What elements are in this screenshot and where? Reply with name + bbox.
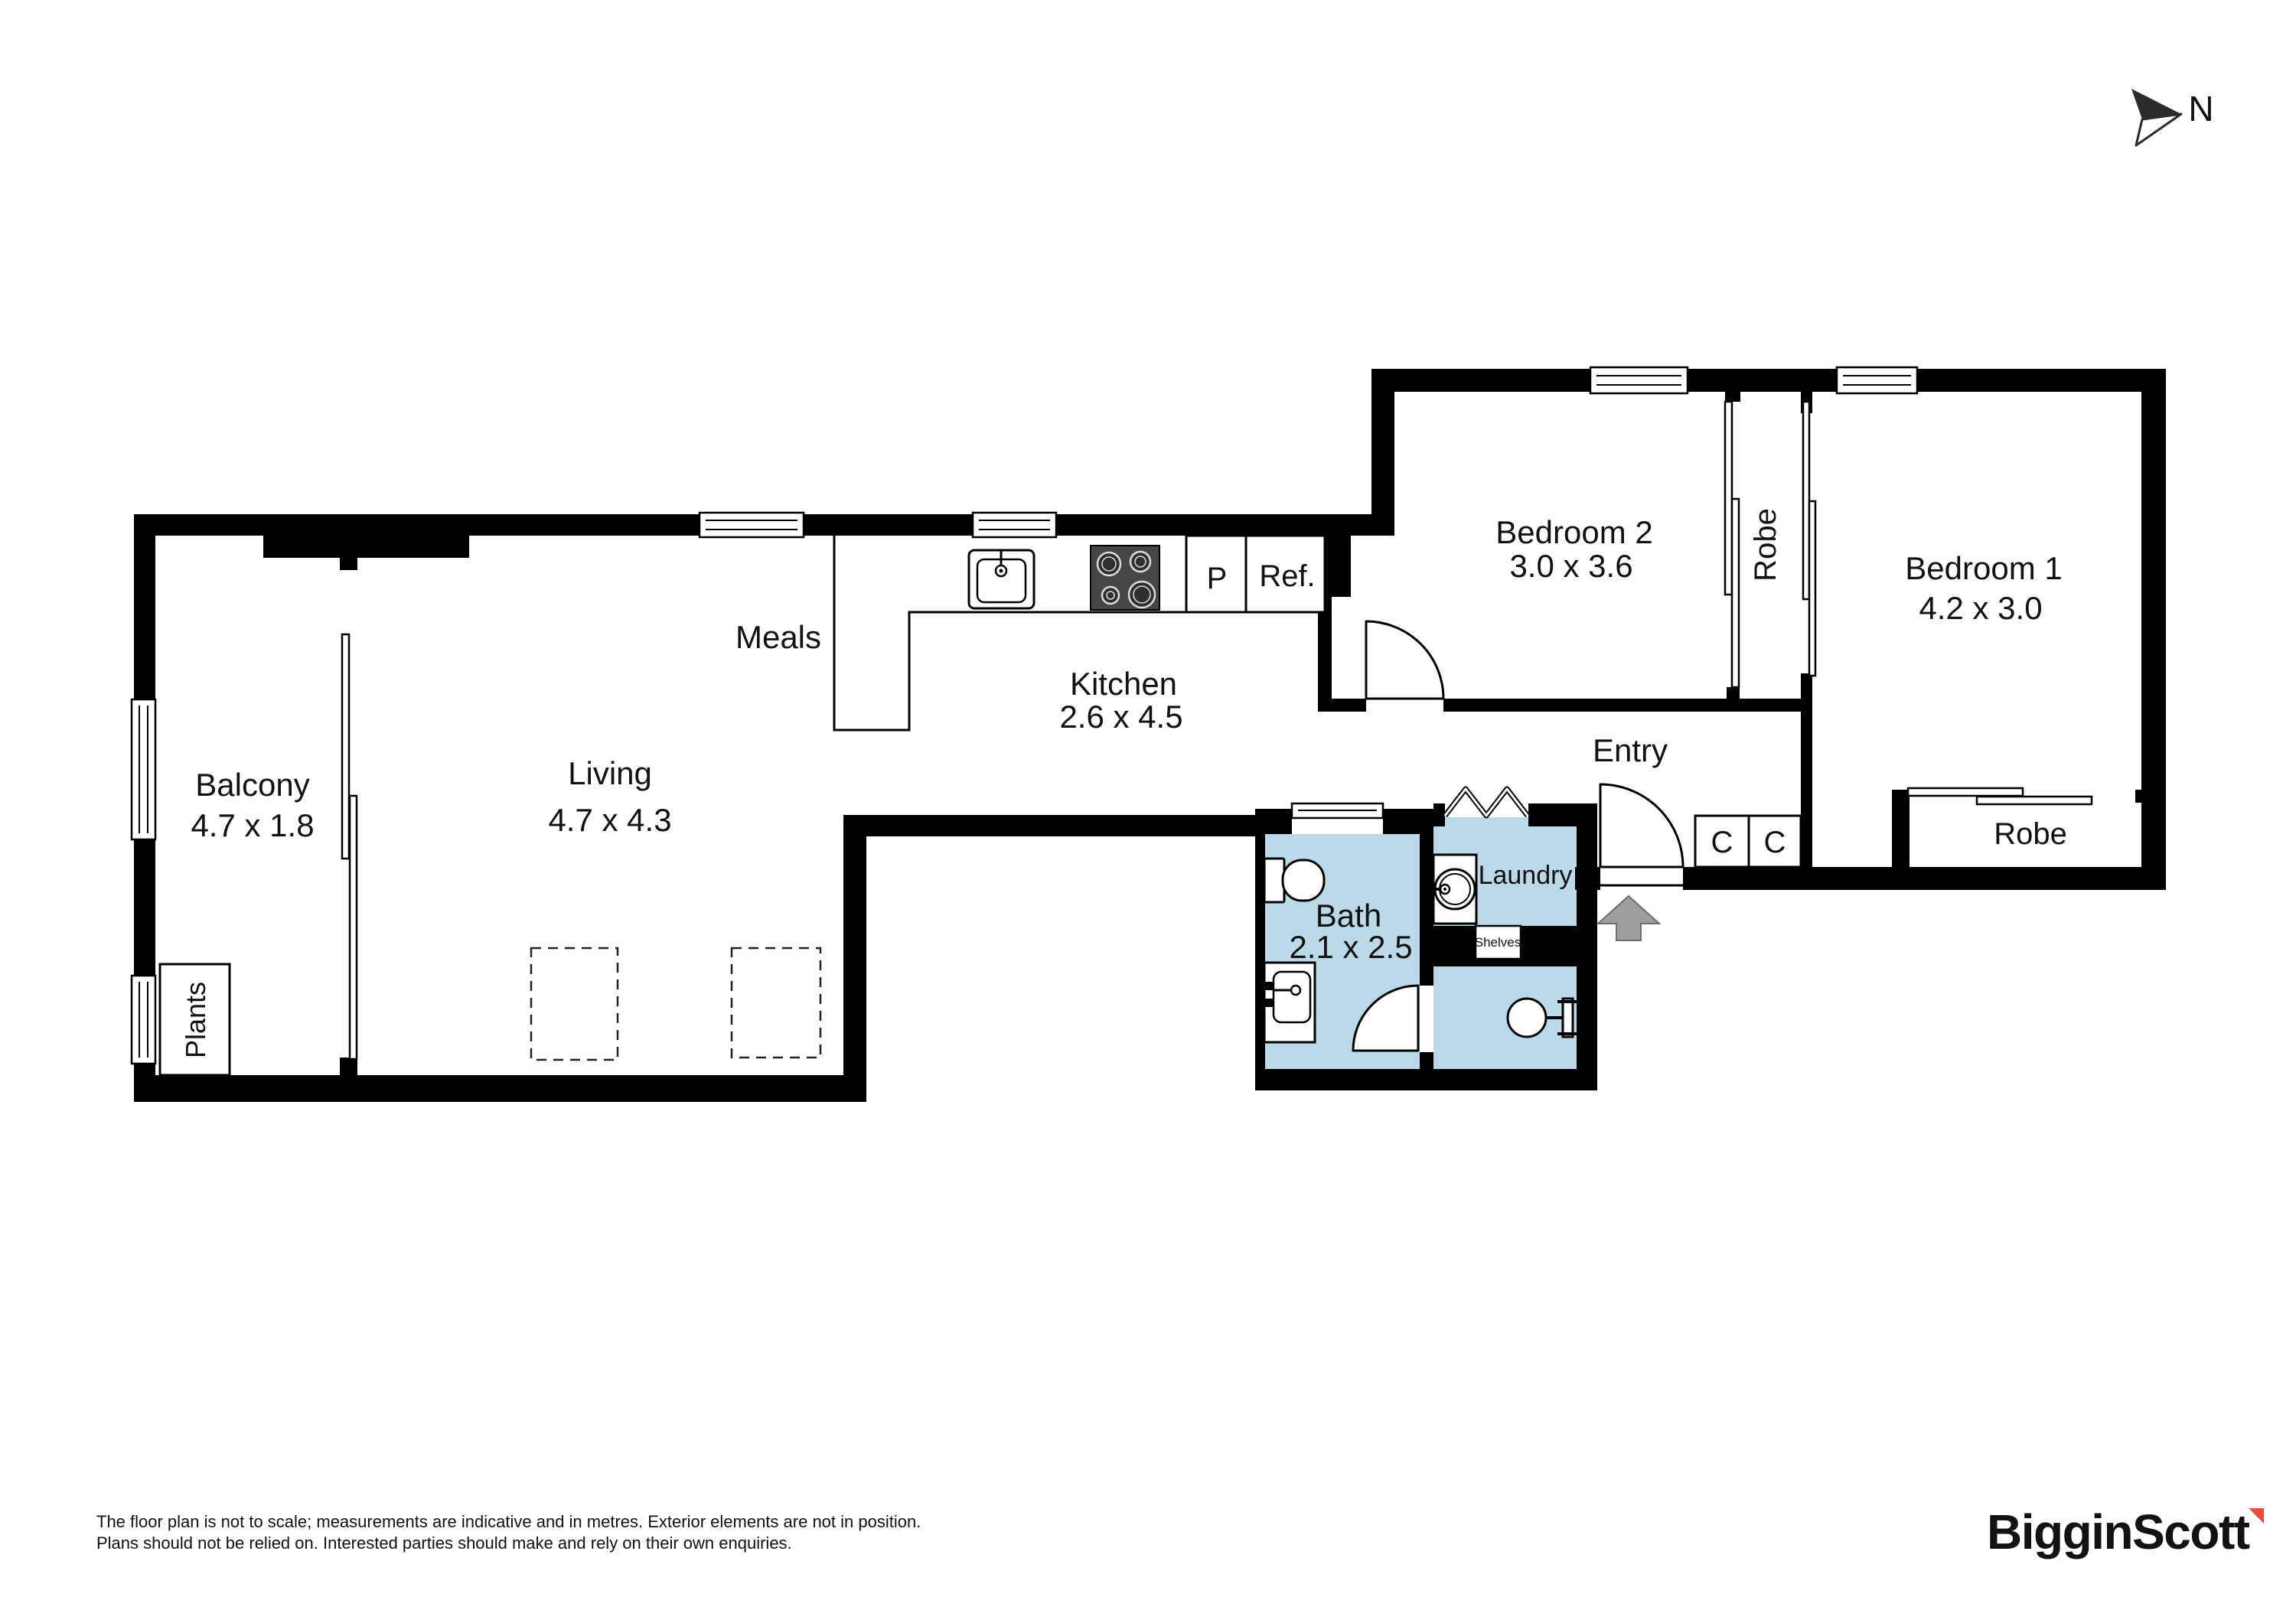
- wall-kitchen-column: [1318, 597, 1332, 712]
- wall-bath-block-right: [1577, 803, 1597, 1090]
- bath-label: Bath: [1316, 898, 1381, 934]
- bedroom2-dims: 3.0 x 3.6: [1509, 548, 1632, 584]
- agency-logo-text: BigginScott: [1987, 1504, 2250, 1559]
- wall-bottom-right-band: [1683, 867, 2166, 890]
- plants-label: Plants: [180, 982, 211, 1058]
- robe1-slider-panel: [1977, 797, 2092, 804]
- cooktop-icon: [1091, 546, 1159, 610]
- wall-laundry-top-stub-left: [1433, 803, 1445, 826]
- wall-band-bed2-left: [1318, 699, 1366, 712]
- agency-logo-mark-icon: [2249, 1508, 2264, 1524]
- balcony-slider-panel: [342, 634, 349, 859]
- wall-living-right: [843, 815, 866, 1102]
- robe2-slider-panel: [1725, 402, 1732, 595]
- wall-bath-divider-stub: [1420, 1052, 1433, 1071]
- bedroom2-label: Bedroom 2: [1495, 514, 1652, 550]
- wall-bed1-west-lower: [1801, 673, 1812, 867]
- robe2-slider-panel: [1732, 499, 1739, 687]
- bedroom1-window: [1837, 367, 1917, 393]
- robe1-label: Robe: [1994, 817, 2067, 851]
- balcony-dims: 4.7 x 1.8: [191, 807, 314, 843]
- wall-robe2-stub-top: [1725, 392, 1740, 402]
- floor-plan-page: Balcony 4.7 x 1.8 Living 4.7 x 4.3 Meals…: [0, 0, 2296, 1623]
- wall-laundry-top-stub-right: [1528, 803, 1577, 826]
- refrigerator-label: Ref.: [1259, 559, 1315, 593]
- entry-arrow-icon: [1598, 896, 1659, 940]
- meals-label: Meals: [735, 619, 821, 655]
- wall-robe1-stub-right: [2135, 790, 2143, 803]
- windows: [132, 367, 1917, 1064]
- north-arrow-icon: [2136, 114, 2181, 145]
- north-label: N: [2188, 89, 2213, 129]
- bedroom2-window: [1590, 367, 1688, 393]
- furniture-dashed-outline: [732, 948, 820, 1058]
- wall-bulkhead-living: [263, 536, 469, 558]
- bath-window-ledge: [1292, 803, 1383, 818]
- disclaimer-line1: The floor plan is not to scale; measurem…: [96, 1512, 921, 1531]
- wall-stub-balcony-slider-bottom: [340, 1058, 357, 1075]
- furniture-dashed-outline: [531, 948, 618, 1060]
- living-dims: 4.7 x 4.3: [548, 802, 671, 838]
- balcony-slider-panel: [350, 796, 357, 1059]
- robe2-label: Robe: [1749, 508, 1782, 582]
- balcony-label: Balcony: [195, 767, 309, 803]
- wall-robe1-stub-left: [1892, 790, 1910, 867]
- cupboard-left-label: C: [1711, 826, 1733, 859]
- bedroom1-label: Bedroom 1: [1905, 550, 2062, 586]
- laundry-label: Laundry: [1479, 861, 1573, 890]
- living-furniture-outlines: [531, 948, 820, 1060]
- wall-connector-vertical: [1371, 369, 1394, 536]
- robe1-slider-panel: [1908, 788, 2023, 796]
- wall-bath-block-bottom: [1255, 1069, 1597, 1090]
- bed1-slider-panel: [1809, 501, 1815, 676]
- bath-vanity-icon: [1264, 963, 1315, 1042]
- disclaimer: The floor plan is not to scale; measurem…: [96, 1512, 921, 1553]
- wall-bath-laundry-divider: [1420, 817, 1433, 986]
- shelves-label: Shelves: [1475, 935, 1521, 950]
- balcony-window-upper: [132, 699, 155, 839]
- wall-robe2-stub-bottom: [1727, 687, 1740, 699]
- disclaimer-line2: Plans should not be relied on. Intereste…: [96, 1533, 792, 1553]
- bedroom2-door: [1366, 621, 1443, 699]
- linen-bifold-doors-icon: [1445, 789, 1528, 816]
- wall-stub-balcony-slider-top: [340, 558, 357, 570]
- wall-bottom-living: [134, 1075, 866, 1102]
- wall-right: [2141, 369, 2166, 890]
- entry-label: Entry: [1593, 732, 1668, 768]
- wall-band-bed2-main: [1443, 699, 1801, 712]
- bath-toilet-icon: [1264, 859, 1324, 902]
- wall-kitchen-bottom: [843, 815, 1265, 836]
- kitchen-label: Kitchen: [1070, 666, 1177, 702]
- pantry-label: P: [1207, 562, 1228, 595]
- kitchen-window: [973, 513, 1056, 537]
- living-label: Living: [568, 755, 652, 791]
- laundry-trough-icon: [1433, 855, 1476, 924]
- compass: N: [2131, 89, 2214, 145]
- wall-bath-top-left: [1255, 809, 1292, 834]
- wall-bath-left: [1255, 815, 1265, 1090]
- balcony-window-lower: [132, 976, 155, 1064]
- meals-window: [700, 513, 804, 537]
- wall-top-bedroom-block: [1371, 369, 2166, 392]
- agency-logo: BigginScott: [1987, 1504, 2264, 1559]
- kitchen-dims: 2.6 x 4.5: [1059, 699, 1182, 735]
- bath-dims: 2.1 x 2.5: [1289, 929, 1412, 965]
- sliding-doors: [342, 402, 2092, 1059]
- cupboard-right-label: C: [1764, 826, 1786, 859]
- entry-door: [1600, 784, 1683, 867]
- bedroom1-dims: 4.2 x 3.0: [1919, 590, 2042, 626]
- kitchen-sink-icon: [969, 550, 1034, 608]
- walls: [134, 369, 2166, 1102]
